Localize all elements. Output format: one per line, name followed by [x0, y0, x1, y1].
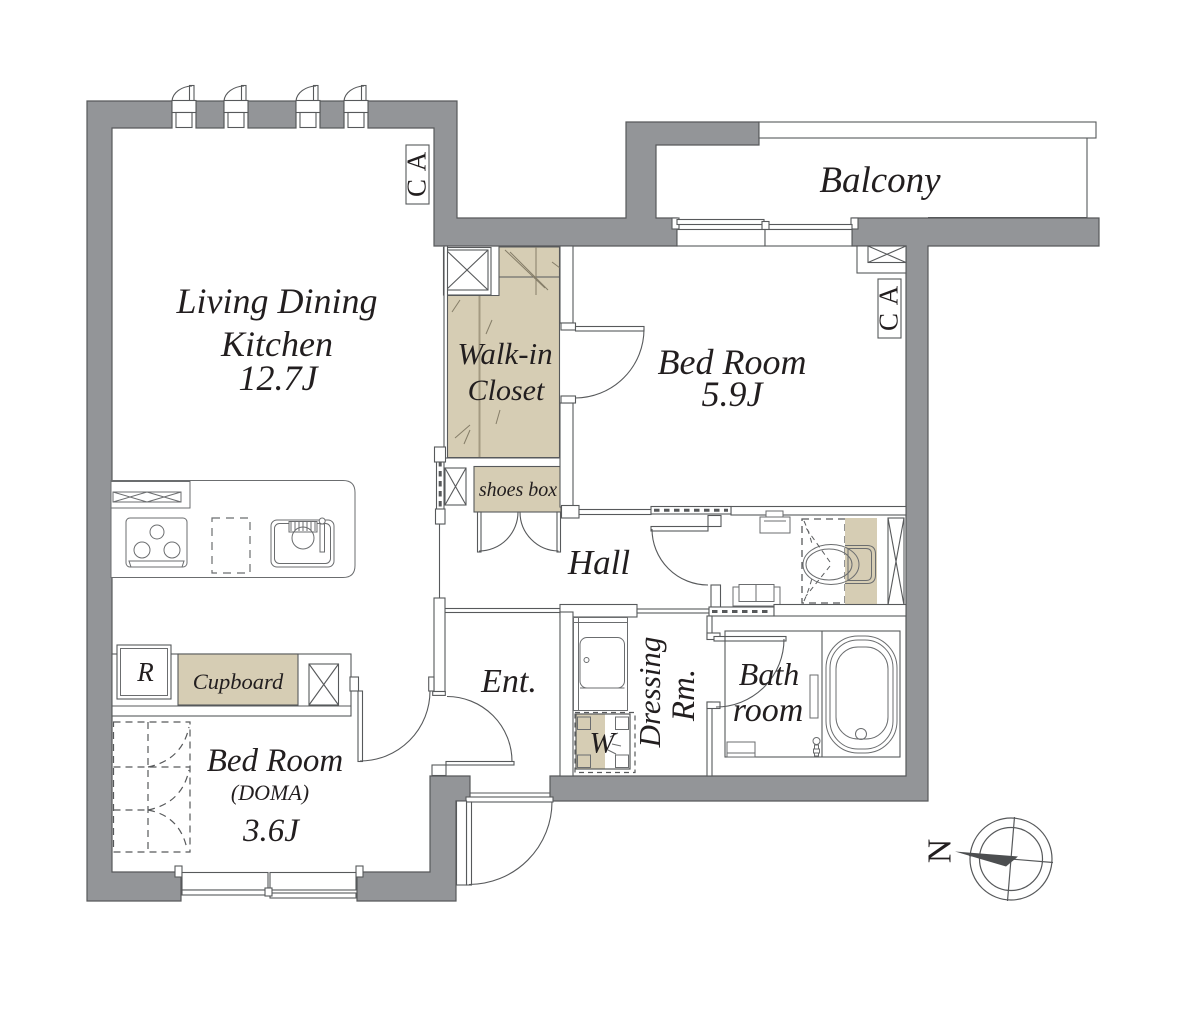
svg-text:A: A	[402, 151, 432, 171]
svg-text:Walk-in: Walk-in	[457, 336, 552, 371]
svg-text:Balcony: Balcony	[819, 160, 941, 201]
svg-text:3.6J: 3.6J	[242, 813, 300, 849]
svg-text:Dressing: Dressing	[632, 637, 667, 749]
svg-text:W: W	[590, 727, 618, 760]
svg-text:Bath: Bath	[739, 656, 799, 692]
svg-text:N: N	[922, 839, 959, 864]
svg-text:R: R	[136, 657, 154, 687]
svg-text:5.9J: 5.9J	[702, 374, 765, 414]
svg-text:Bed Room: Bed Room	[207, 743, 344, 779]
svg-text:Closet: Closet	[468, 374, 545, 407]
svg-text:Hall: Hall	[567, 543, 630, 582]
svg-text:room: room	[733, 692, 804, 729]
svg-text:(DOMA): (DOMA)	[231, 780, 309, 805]
svg-text:12.7J: 12.7J	[239, 358, 320, 398]
svg-text:Living Dining: Living Dining	[175, 281, 377, 321]
svg-text:Rm.: Rm.	[666, 669, 702, 722]
svg-text:C: C	[874, 313, 904, 331]
svg-text:Ent.: Ent.	[480, 663, 537, 700]
svg-text:A: A	[874, 285, 904, 305]
svg-text:Cupboard: Cupboard	[193, 669, 284, 694]
svg-text:C: C	[402, 179, 432, 197]
svg-text:shoes box: shoes box	[479, 479, 557, 501]
